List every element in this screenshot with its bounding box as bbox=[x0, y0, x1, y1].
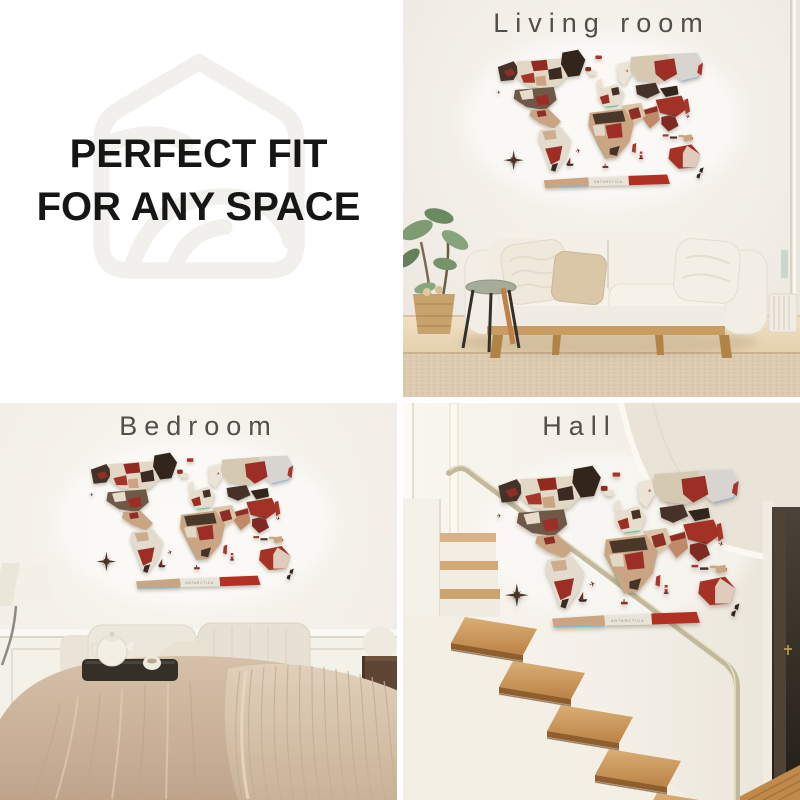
teacup bbox=[143, 656, 161, 670]
product-collage: PERFECT FIT FOR ANY SPACE bbox=[0, 0, 800, 800]
bedroom-photo bbox=[0, 403, 397, 800]
headline: PERFECT FIT FOR ANY SPACE bbox=[0, 128, 397, 234]
headline-line-2: FOR ANY SPACE bbox=[0, 181, 397, 234]
hall-label: Hall bbox=[403, 411, 756, 442]
living-room-photo bbox=[403, 0, 800, 397]
living-room-label: Living room bbox=[403, 8, 800, 39]
carpet bbox=[403, 352, 800, 397]
bedroom-label: Bedroom bbox=[0, 411, 397, 442]
hall-photo bbox=[403, 403, 800, 800]
doorway bbox=[763, 501, 800, 791]
upper-stair-flight bbox=[440, 533, 500, 617]
bedroom-panel: Bedroom bbox=[0, 403, 397, 800]
radiator bbox=[769, 294, 797, 332]
living-room-panel: Living room bbox=[403, 0, 800, 397]
hall-panel: Hall bbox=[403, 403, 800, 800]
ribbed-throw bbox=[225, 664, 397, 800]
sofa-wood-base bbox=[487, 326, 725, 335]
intro-panel: PERFECT FIT FOR ANY SPACE bbox=[0, 0, 397, 397]
basket bbox=[413, 294, 455, 334]
headline-line-1: PERFECT FIT bbox=[0, 128, 397, 181]
